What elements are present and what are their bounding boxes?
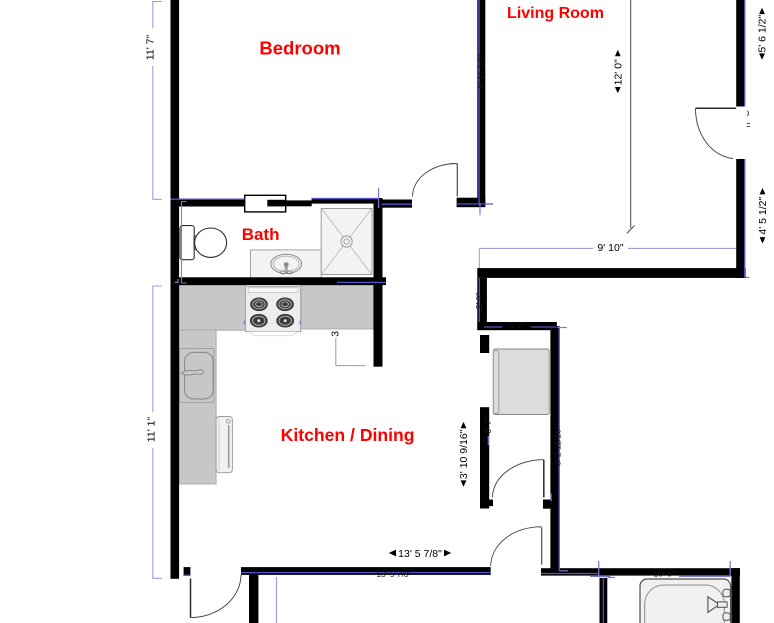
svg-text:6' 7": 6' 7" bbox=[483, 417, 493, 433]
svg-text:Bedroom: Bedroom bbox=[259, 37, 340, 58]
svg-text:2' 0": 2' 0" bbox=[474, 293, 484, 309]
svg-text:Bath: Bath bbox=[242, 225, 280, 244]
svg-text:11' 1": 11' 1" bbox=[145, 417, 157, 443]
svg-text:11' 7": 11' 7" bbox=[145, 35, 157, 61]
svg-text:3' 10 9/16": 3' 10 9/16" bbox=[458, 429, 470, 479]
svg-text:10' 6": 10' 6" bbox=[653, 569, 674, 579]
svg-text:4' 5 1/2": 4' 5 1/2" bbox=[757, 197, 769, 235]
svg-text:Living Room: Living Room bbox=[507, 5, 604, 22]
svg-text:12' 0": 12' 0" bbox=[612, 59, 624, 85]
svg-text:Kitchen / Dining: Kitchen / Dining bbox=[281, 425, 415, 445]
svg-text:5' 0": 5' 0" bbox=[509, 320, 525, 330]
svg-text:9' 10": 9' 10" bbox=[597, 242, 623, 254]
svg-text:13' 5 7/8": 13' 5 7/8" bbox=[398, 548, 442, 560]
svg-text:8' 11 1/2": 8' 11 1/2" bbox=[476, 54, 486, 89]
svg-text:3: 3 bbox=[329, 331, 341, 337]
svg-text:5' 6 1/2": 5' 6 1/2" bbox=[757, 15, 769, 53]
svg-text:13' 5 7/8": 13' 5 7/8" bbox=[376, 569, 411, 579]
svg-text:3' 2 11/16": 3' 2 11/16" bbox=[552, 426, 562, 465]
